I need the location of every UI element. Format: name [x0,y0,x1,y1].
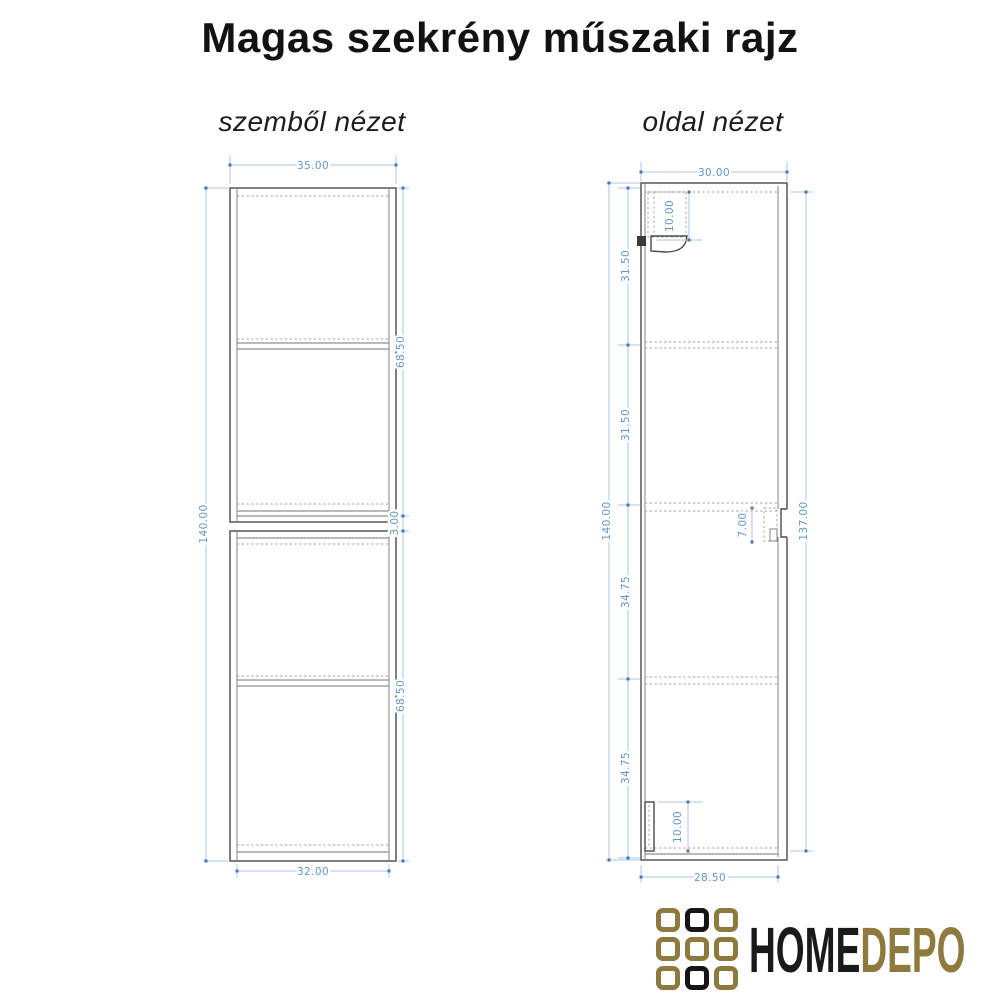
side-dim-section-3: 34.75 [620,576,632,608]
front-dim-lower-door: 68.50 [395,680,407,712]
side-dim-section-1: 31.50 [620,250,632,282]
logo-grid [656,908,739,991]
logo-grid-square-gold [714,908,738,932]
side-handle-rail [764,508,777,541]
homedepo-logo: HOMEDEPO [656,908,1000,991]
side-dim-base: 10.00 [672,811,684,843]
front-dim-overall-width: 35.00 [297,160,329,172]
logo-grid-square-gold [656,966,680,990]
technical-drawing-canvas: Magas szekrény műszaki rajz szemből néze… [0,0,1000,1000]
logo-grid-square-black [685,966,709,990]
side-box [641,183,787,860]
side-dim-inner-depth: 28.50 [694,872,726,884]
side-dim-section-4: 34.75 [620,752,632,784]
side-dim-hanger: 10.00 [664,200,676,232]
side-dim-door-height: 137.00 [798,501,810,540]
logo-grid-square-gold [714,937,738,961]
cabinet-drawing: 35.00 140.00 68.50 3.00 68.50 32.00 [0,0,1000,1000]
side-dim-overall-height: 140.00 [601,501,613,540]
front-dim-upper-door: 68.50 [395,336,407,368]
side-view-drawing [637,183,790,860]
side-dim-rail: 7.00 [737,513,749,538]
front-view-drawing [230,188,396,861]
side-hanger-bracket [637,192,687,252]
side-dim-section-2: 31.50 [620,409,632,441]
side-base-bracket [645,802,654,851]
front-upper-box [230,188,396,522]
front-lower-box [230,531,396,861]
logo-grid-square-gold [685,937,709,961]
logo-text-depo: DEPO [860,914,965,986]
logo-grid-square-gold [714,966,738,990]
front-dim-door-gap: 3.00 [389,511,401,536]
logo-text-home: HOME [749,914,860,986]
logo-text: HOMEDEPO [749,918,966,982]
front-dim-inner-width: 32.00 [297,866,329,878]
logo-grid-square-gold [656,937,680,961]
logo-grid-square-gold [656,908,680,932]
front-dim-overall-height: 140.00 [198,504,210,543]
side-dim-overall-depth: 30.00 [698,167,730,179]
logo-grid-square-black [685,908,709,932]
